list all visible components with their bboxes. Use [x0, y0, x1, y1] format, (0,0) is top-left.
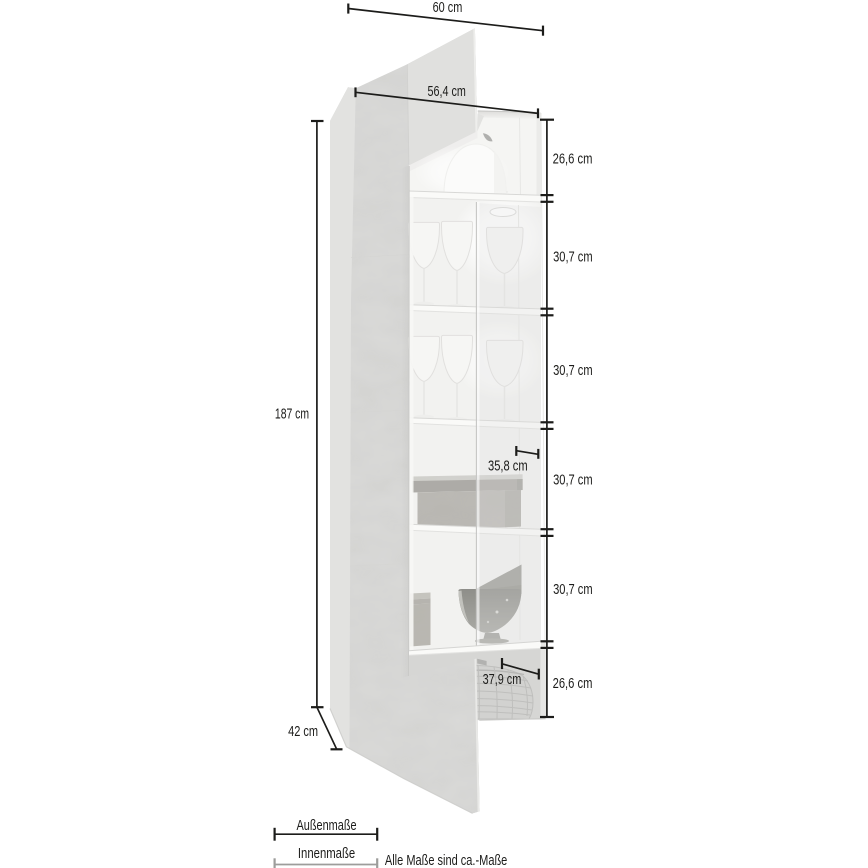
svg-text:30,7 cm: 30,7 cm	[553, 473, 593, 489]
svg-text:56,4 cm: 56,4 cm	[428, 84, 466, 100]
svg-text:42 cm: 42 cm	[288, 724, 318, 740]
svg-text:187 cm: 187 cm	[275, 407, 309, 423]
svg-text:Alle Maße sind ca.-Maße: Alle Maße sind ca.-Maße	[385, 853, 507, 868]
svg-text:60 cm: 60 cm	[433, 0, 463, 16]
svg-text:26,6 cm: 26,6 cm	[553, 152, 593, 168]
svg-text:26,6 cm: 26,6 cm	[553, 676, 593, 692]
svg-text:30,7 cm: 30,7 cm	[553, 582, 593, 598]
svg-text:37,9 cm: 37,9 cm	[483, 672, 522, 688]
svg-text:Innenmaße: Innenmaße	[298, 846, 355, 862]
svg-text:35,8 cm: 35,8 cm	[488, 459, 528, 475]
svg-text:30,7 cm: 30,7 cm	[553, 250, 593, 266]
svg-text:Außenmaße: Außenmaße	[297, 818, 357, 834]
svg-text:30,7 cm: 30,7 cm	[553, 363, 593, 379]
